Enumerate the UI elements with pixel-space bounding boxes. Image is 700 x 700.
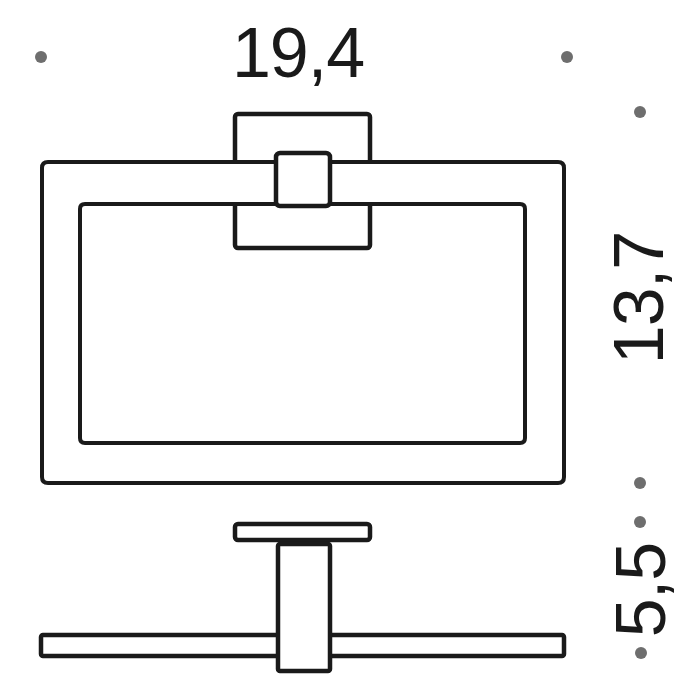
depth-dimension-label: 5,5 — [602, 543, 680, 637]
width-dimension-label: 19,4 — [232, 14, 364, 92]
front-view — [42, 114, 564, 483]
height-dimension-label: 13,7 — [600, 232, 678, 364]
post-profile — [278, 544, 330, 671]
towel-ring-dimension-drawing: 19,4 13,7 5,5 — [0, 0, 700, 700]
side-view — [41, 524, 564, 671]
marker-dot — [35, 51, 47, 63]
marker-dot — [634, 516, 646, 528]
ring-connector-block — [276, 153, 330, 206]
marker-dot — [634, 477, 646, 489]
wall-plate-profile — [235, 524, 370, 540]
technical-drawing-page: 19,4 13,7 5,5 — [0, 0, 700, 700]
marker-dot — [634, 106, 646, 118]
marker-dot — [635, 647, 647, 659]
marker-dot — [561, 51, 573, 63]
